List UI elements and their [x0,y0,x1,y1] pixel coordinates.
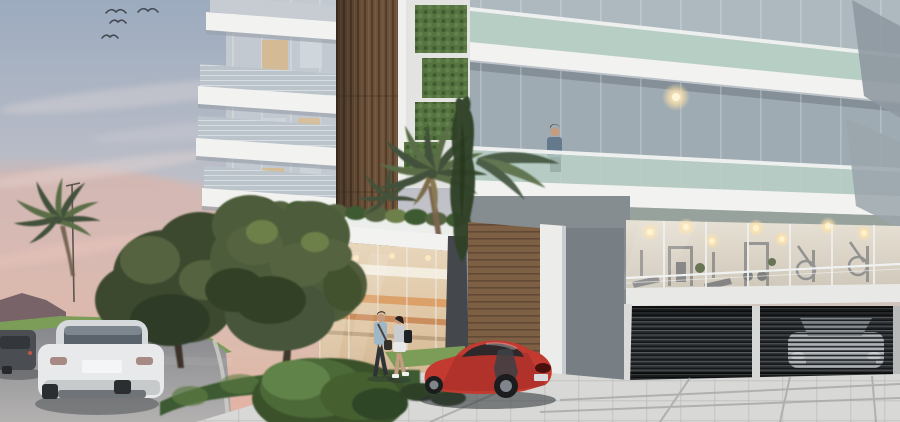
gate-center-post [752,306,760,382]
architectural-rendering [0,0,900,422]
gate-right-post [893,306,900,380]
handbag [404,330,412,343]
scene-canvas [0,0,900,422]
suv-wheel-right [114,380,131,394]
red-car-taillight [535,363,551,373]
red-car-plate [534,374,548,381]
suv-wheel-left [42,384,58,399]
gym-mezzanine [620,217,900,306]
grey-side-wall [566,228,624,400]
parking-garage [618,304,900,384]
louvered-gate [628,306,894,382]
white-column-shade [562,226,566,394]
